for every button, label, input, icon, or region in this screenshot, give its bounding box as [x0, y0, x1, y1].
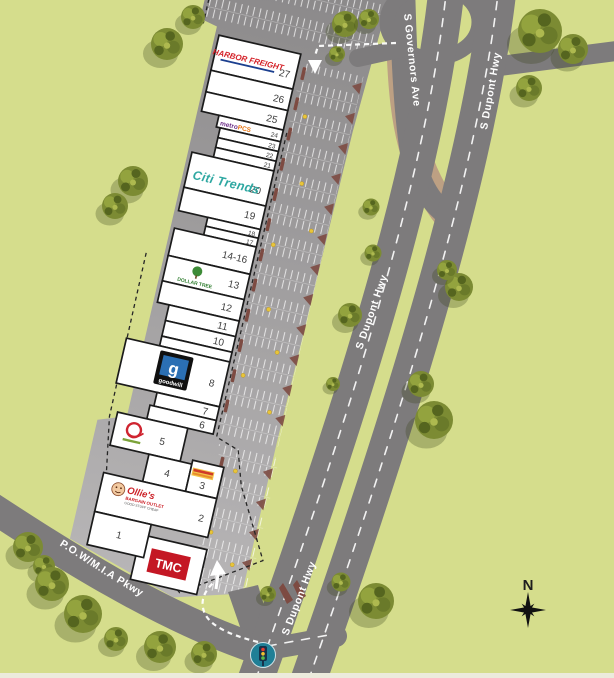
lot-access-north [358, 47, 408, 58]
traffic-signal-icon [251, 643, 276, 668]
site-plan-map: 27 26 25 24 23 22 21 20 19 18 17 14-16 1… [0, 0, 614, 678]
compass-north-label: N [523, 577, 534, 594]
page-edge-band [0, 673, 614, 678]
